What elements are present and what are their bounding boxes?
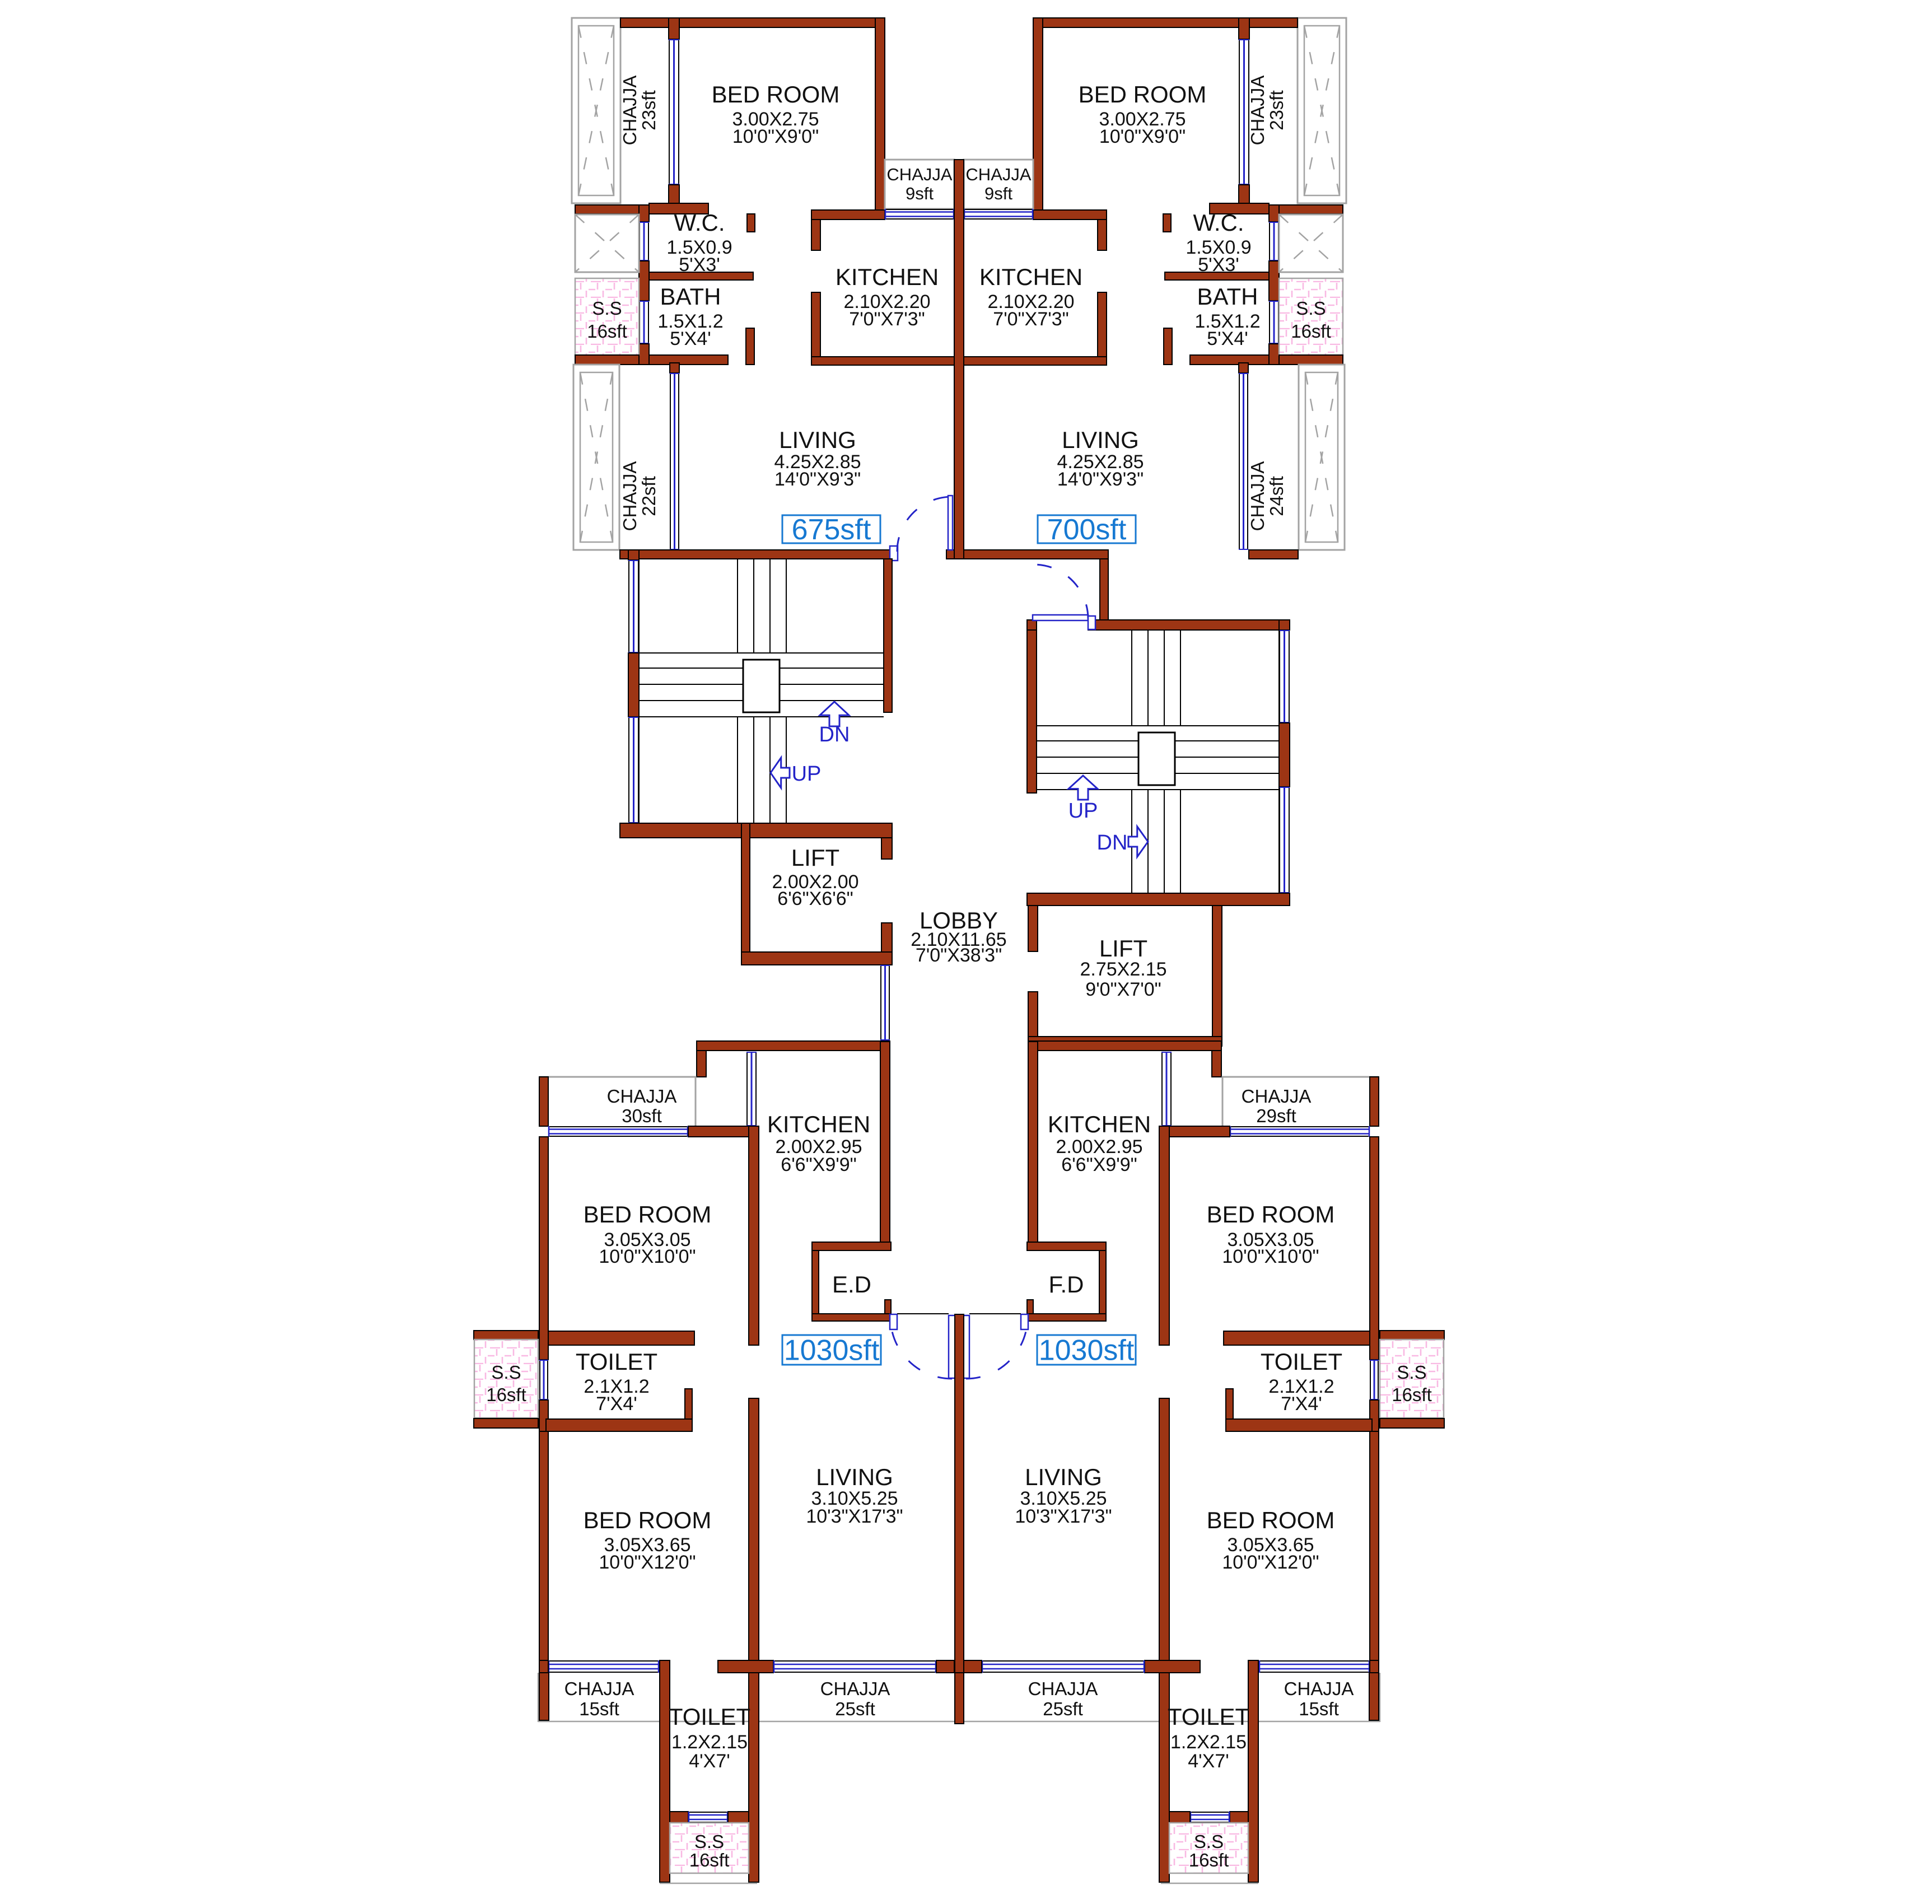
svg-text:22sft: 22sft [638,476,659,516]
svg-text:CHAJJA: CHAJJA [607,1086,677,1107]
svg-text:24sft: 24sft [1266,476,1287,516]
svg-text:BED ROOM: BED ROOM [712,81,840,108]
svg-text:LIVING: LIVING [1025,1464,1102,1490]
svg-text:CHAJJA: CHAJJA [619,461,640,531]
svg-text:BED ROOM: BED ROOM [584,1507,712,1533]
svg-text:16sft: 16sft [1291,321,1331,342]
svg-text:CHAJJA: CHAJJA [1247,76,1268,146]
svg-text:CHAJJA: CHAJJA [820,1678,890,1699]
svg-text:S.S: S.S [491,1362,521,1383]
svg-text:23sft: 23sft [638,90,659,130]
svg-text:7'0"X7'3": 7'0"X7'3" [993,309,1068,330]
svg-text:10'0"X9'0": 10'0"X9'0" [1099,126,1186,147]
svg-text:6'6"X9'9": 6'6"X9'9" [781,1154,856,1175]
svg-text:9'0"X7'0": 9'0"X7'0" [1085,979,1161,1000]
svg-text:9sft: 9sft [984,184,1012,203]
svg-text:4'X7': 4'X7' [689,1751,730,1772]
svg-text:KITCHEN: KITCHEN [979,264,1082,290]
svg-text:KITCHEN: KITCHEN [836,264,939,290]
svg-text:10'3"X17'3": 10'3"X17'3" [1015,1506,1112,1527]
svg-text:10'0"X12'0": 10'0"X12'0" [599,1552,696,1573]
svg-text:UP: UP [1068,799,1098,823]
svg-text:W.C.: W.C. [674,209,725,236]
svg-text:1.2X2.15: 1.2X2.15 [671,1732,748,1753]
svg-text:16sft: 16sft [1189,1850,1229,1870]
svg-text:16sft: 16sft [1392,1384,1432,1405]
svg-text:15sft: 15sft [579,1698,619,1719]
svg-text:2.75X2.15: 2.75X2.15 [1080,959,1166,980]
svg-text:S.S: S.S [694,1831,724,1852]
svg-text:29sft: 29sft [1256,1105,1296,1126]
svg-text:CHAJJA: CHAJJA [564,1678,634,1699]
svg-text:BATH: BATH [1197,283,1258,310]
svg-text:10'0"X10'0": 10'0"X10'0" [1222,1246,1319,1267]
svg-text:700sft: 700sft [1047,514,1127,546]
svg-text:23sft: 23sft [1266,90,1287,130]
svg-text:LIVING: LIVING [1062,427,1139,453]
svg-text:675sft: 675sft [792,514,871,546]
svg-text:15sft: 15sft [1299,1698,1339,1719]
svg-text:LIVING: LIVING [779,427,856,453]
svg-text:BED ROOM: BED ROOM [1207,1201,1335,1228]
svg-text:6'6"X9'9": 6'6"X9'9" [1061,1154,1137,1175]
svg-text:25sft: 25sft [835,1698,875,1719]
svg-text:16sft: 16sft [587,321,627,342]
svg-text:LIVING: LIVING [816,1464,893,1490]
svg-text:7'X4': 7'X4' [1281,1393,1322,1415]
svg-text:CHAJJA: CHAJJA [886,165,952,184]
svg-text:KITCHEN: KITCHEN [767,1111,870,1137]
svg-text:S.S: S.S [1194,1831,1224,1852]
svg-text:UP: UP [792,762,822,786]
svg-text:10'0"X9'0": 10'0"X9'0" [732,126,819,147]
svg-text:CHAJJA: CHAJJA [965,165,1031,184]
svg-text:7'X4': 7'X4' [596,1393,637,1415]
svg-text:7'0"X38'3": 7'0"X38'3" [916,945,1002,966]
svg-text:10'3"X17'3": 10'3"X17'3" [806,1506,903,1527]
svg-text:S.S: S.S [1296,298,1326,319]
svg-text:KITCHEN: KITCHEN [1048,1111,1151,1137]
svg-text:TOILET: TOILET [1261,1348,1342,1375]
svg-text:25sft: 25sft [1043,1698,1083,1719]
svg-text:16sft: 16sft [486,1384,526,1405]
svg-text:5'X3': 5'X3' [1198,254,1239,276]
svg-text:CHAJJA: CHAJJA [1247,461,1268,531]
svg-text:5'X4': 5'X4' [670,328,711,349]
svg-text:S.S: S.S [1397,1362,1426,1383]
svg-text:9sft: 9sft [906,184,934,203]
svg-text:5'X3': 5'X3' [679,254,720,276]
svg-text:BED ROOM: BED ROOM [1207,1507,1335,1533]
svg-text:E.D: E.D [832,1271,871,1298]
svg-text:BED ROOM: BED ROOM [1079,81,1207,108]
svg-text:30sft: 30sft [622,1105,662,1126]
svg-text:TOILET: TOILET [576,1348,657,1375]
svg-text:16sft: 16sft [689,1850,730,1870]
svg-text:BED ROOM: BED ROOM [584,1201,712,1228]
svg-text:1.2X2.15: 1.2X2.15 [1170,1732,1247,1753]
svg-text:F.D: F.D [1049,1271,1084,1298]
svg-text:S.S: S.S [592,298,622,319]
svg-text:LIFT: LIFT [791,844,839,871]
svg-text:W.C.: W.C. [1193,209,1244,236]
svg-text:CHAJJA: CHAJJA [619,76,640,146]
svg-text:14'0"X9'3": 14'0"X9'3" [1057,469,1144,490]
svg-text:DN: DN [819,723,850,746]
svg-text:1030sft: 1030sft [1039,1334,1135,1367]
svg-text:TOILET: TOILET [669,1704,750,1730]
svg-text:7'0"X7'3": 7'0"X7'3" [849,309,925,330]
svg-text:CHAJJA: CHAJJA [1242,1086,1312,1107]
svg-text:6'6"X6'6": 6'6"X6'6" [777,888,853,909]
svg-text:TOILET: TOILET [1168,1704,1249,1730]
svg-text:LIFT: LIFT [1099,935,1147,962]
svg-text:CHAJJA: CHAJJA [1028,1678,1098,1699]
svg-text:CHAJJA: CHAJJA [1284,1678,1354,1699]
svg-text:10'0"X10'0": 10'0"X10'0" [599,1246,696,1267]
svg-text:10'0"X12'0": 10'0"X12'0" [1222,1552,1319,1573]
svg-text:1030sft: 1030sft [784,1334,880,1367]
svg-text:5'X4': 5'X4' [1207,328,1248,349]
svg-text:14'0"X9'3": 14'0"X9'3" [774,469,861,490]
svg-text:DN: DN [1097,831,1128,855]
svg-text:4'X7': 4'X7' [1188,1751,1229,1772]
svg-text:BATH: BATH [660,283,721,310]
